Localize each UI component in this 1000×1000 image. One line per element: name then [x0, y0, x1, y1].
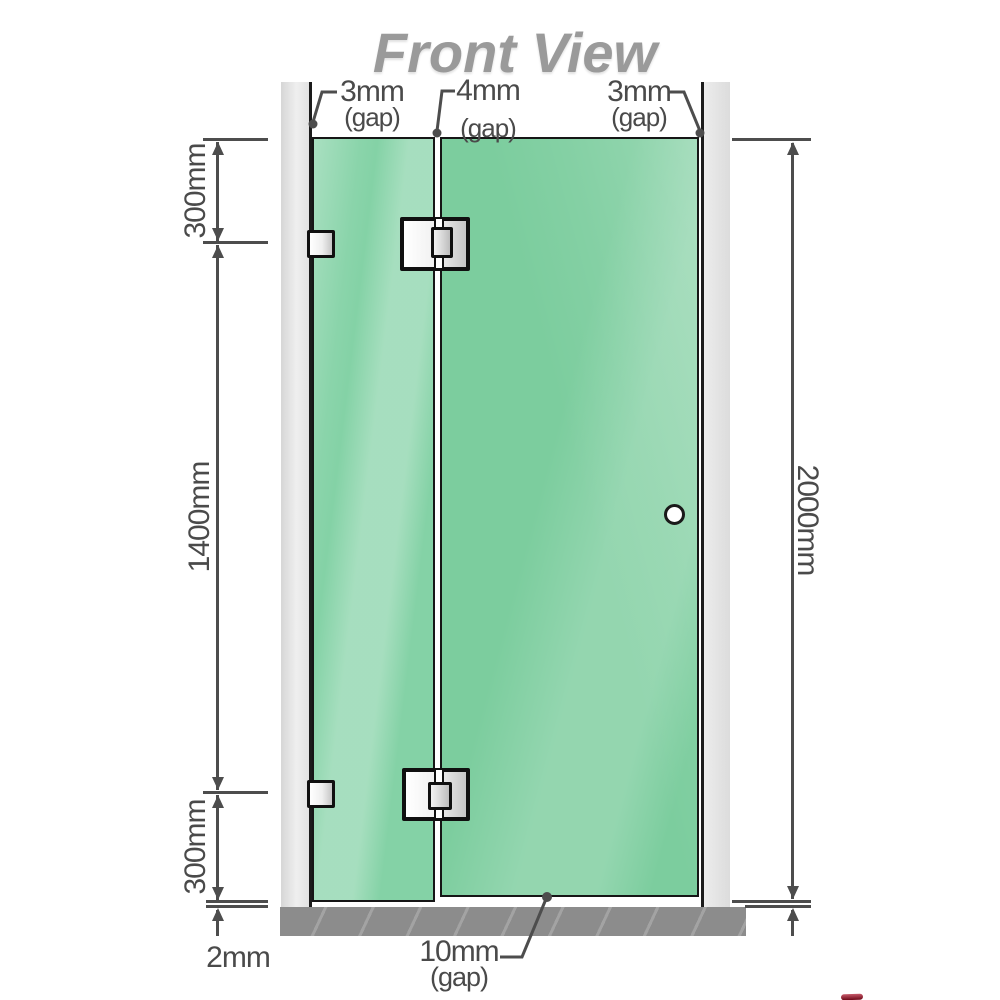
arrow-up-icon: [787, 908, 799, 921]
arrow-up-icon: [212, 908, 224, 921]
wall-bracket-top: [307, 230, 335, 258]
arrow-up-icon: [212, 142, 224, 155]
floor-base: [280, 907, 746, 936]
gap-label-middle-unit: (gap): [456, 116, 520, 140]
right-wall: [704, 82, 730, 907]
arrow-down-icon: [212, 228, 224, 241]
gap-label-middle: 4mm (gap): [456, 78, 520, 140]
dimension-tick: [203, 138, 268, 141]
front-view-diagram: Front View 300mm 1400mm 300mm 2mm 2: [0, 0, 1000, 1000]
dimension-tick: [203, 241, 268, 244]
door-handle-icon: [664, 504, 685, 525]
dim-label-left-middle: 1400mm: [183, 462, 217, 573]
gap-label-middle-value: 4mm: [456, 78, 520, 104]
logo-fragment: [841, 994, 863, 1000]
dimension-tick: [206, 900, 268, 903]
arrow-down-icon: [787, 886, 799, 899]
gap-label-left: 3mm (gap): [340, 79, 404, 129]
hinge-bottom-tab: [428, 782, 452, 810]
dim-label-floor-gap-left: 2mm: [206, 941, 270, 975]
dimension-line: [216, 795, 219, 900]
dimension-tick: [745, 905, 811, 908]
gap-label-right: 3mm (gap): [607, 79, 671, 129]
dimension-line: [216, 142, 219, 241]
arrow-up-icon: [787, 142, 799, 155]
dim-label-right-full: 2000mm: [790, 465, 824, 576]
gap-label-door-floor-unit: (gap): [419, 965, 498, 990]
arrow-down-icon: [212, 887, 224, 900]
arrow-up-icon: [212, 795, 224, 808]
door-glass-panel: [440, 137, 699, 897]
dim-label-left-bottom: 300mm: [179, 799, 213, 894]
arrow-down-icon: [212, 777, 224, 790]
dim-label-left-top: 300mm: [179, 143, 213, 238]
dimension-tick: [203, 791, 268, 794]
hinge-top-tab: [431, 227, 453, 258]
wall-bracket-bottom: [307, 780, 335, 808]
dimension-tick: [732, 138, 811, 141]
dimension-tick: [732, 900, 811, 903]
left-wall: [281, 82, 309, 907]
gap-label-door-floor: 10mm (gap): [419, 939, 498, 990]
gap-label-right-unit: (gap): [607, 105, 671, 129]
gap-label-left-unit: (gap): [340, 105, 404, 129]
arrow-up-icon: [212, 245, 224, 258]
